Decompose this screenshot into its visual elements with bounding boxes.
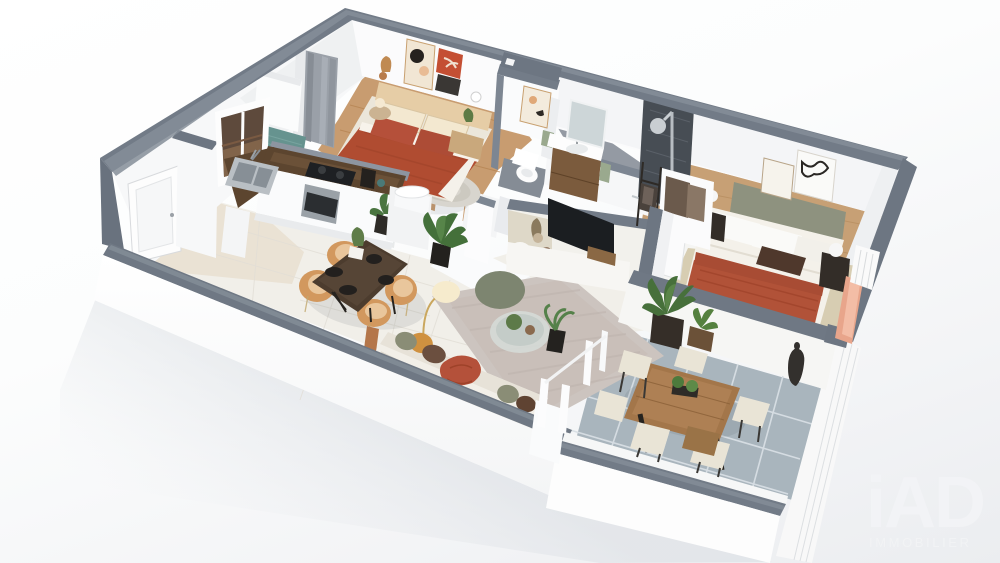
svg-text:IMMOBILIER: IMMOBILIER xyxy=(869,535,972,550)
svg-text:iAD: iAD xyxy=(866,463,984,543)
